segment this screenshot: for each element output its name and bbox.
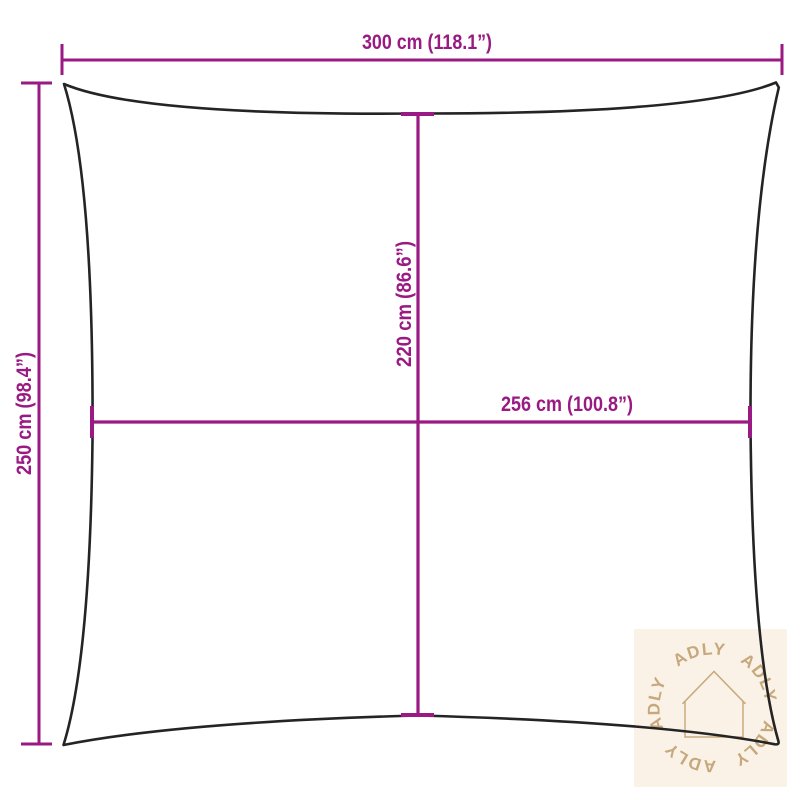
- svg-text:220 cm (86.6”): 220 cm (86.6”): [393, 241, 416, 367]
- svg-text:300 cm (118.1”): 300 cm (118.1”): [362, 31, 492, 54]
- svg-text:250 cm (98.4”): 250 cm (98.4”): [13, 352, 36, 475]
- svg-text:256 cm (100.8”): 256 cm (100.8”): [501, 393, 633, 416]
